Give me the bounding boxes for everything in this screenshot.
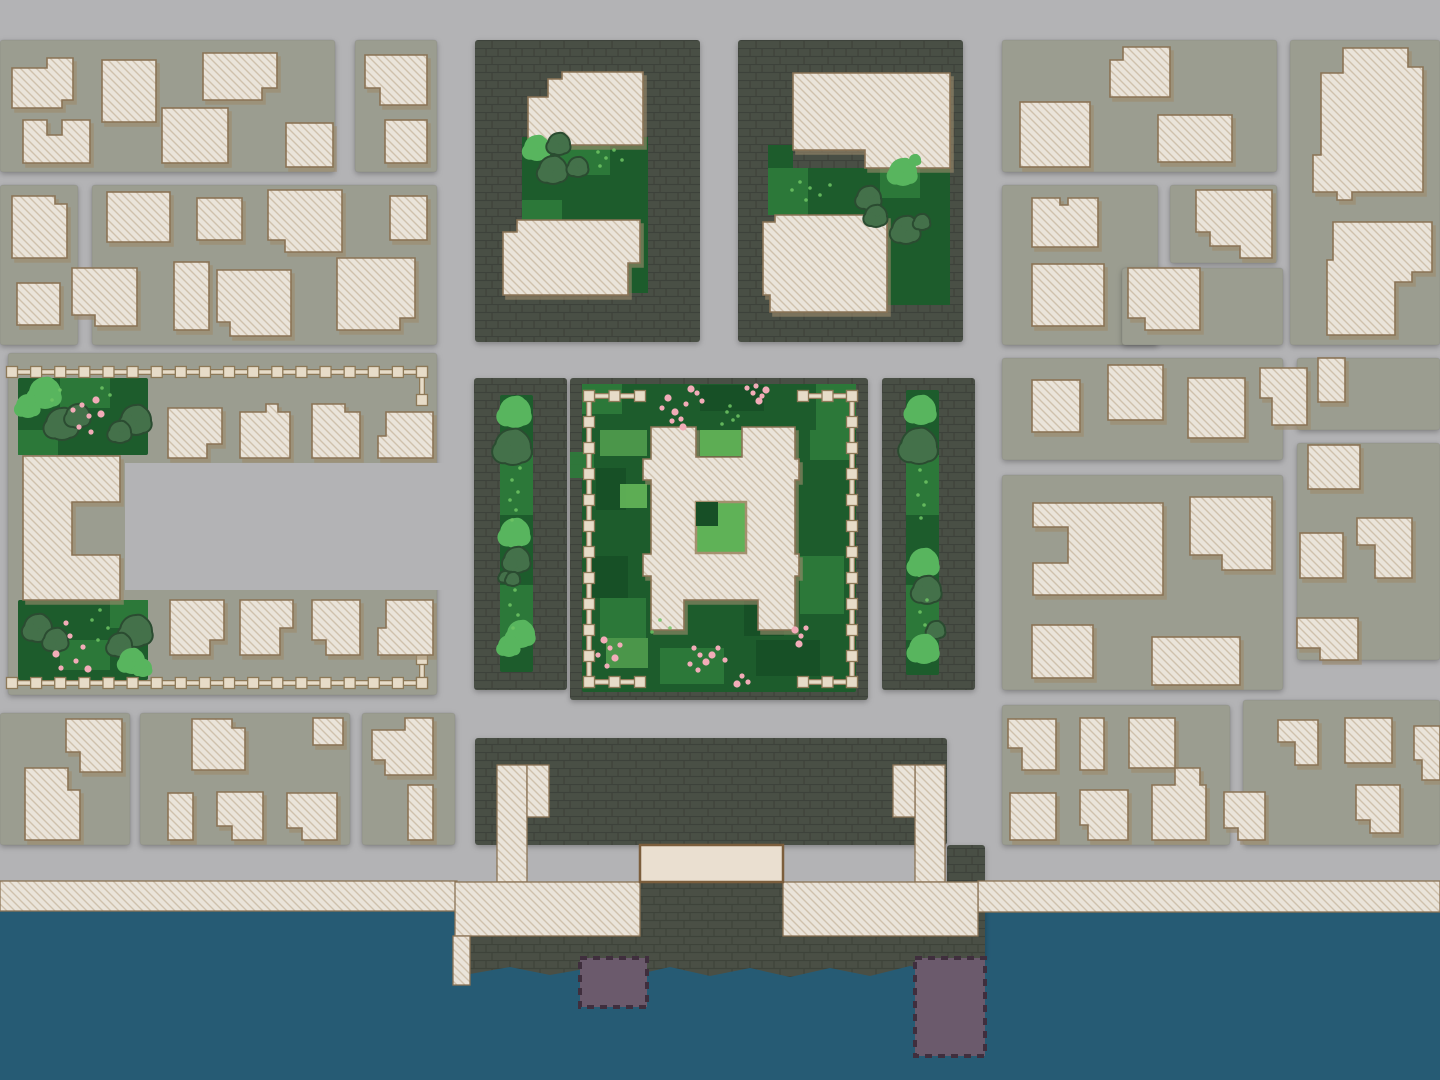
fence-post bbox=[320, 678, 331, 689]
building bbox=[197, 198, 242, 240]
grass-speckle bbox=[916, 493, 920, 497]
flower bbox=[722, 657, 727, 662]
grass-speckle bbox=[923, 623, 927, 627]
fence-post bbox=[127, 678, 138, 689]
building bbox=[286, 123, 333, 167]
garden-patch bbox=[800, 556, 844, 614]
grass-speckle bbox=[731, 418, 735, 422]
tree-canopy bbox=[913, 154, 919, 160]
flower bbox=[76, 424, 81, 429]
fence-post bbox=[417, 395, 428, 406]
garden-patch bbox=[700, 385, 764, 411]
grass-speckle bbox=[108, 393, 112, 397]
boardwalk bbox=[455, 882, 640, 936]
fence-post bbox=[417, 678, 428, 689]
flower bbox=[733, 680, 740, 687]
grass-speckle bbox=[658, 618, 662, 622]
fence-post bbox=[847, 677, 858, 688]
grass-speckle bbox=[918, 610, 922, 614]
tree-canopy bbox=[548, 157, 562, 171]
fence-post bbox=[344, 678, 355, 689]
garden-patch bbox=[756, 640, 820, 676]
flower bbox=[744, 385, 749, 390]
grass-speckle bbox=[96, 638, 100, 642]
fence-post bbox=[175, 678, 186, 689]
dock bbox=[580, 958, 647, 1007]
tree-canopy bbox=[127, 648, 141, 662]
tree-canopy bbox=[33, 615, 47, 629]
fence-post bbox=[7, 367, 18, 378]
tree-canopy bbox=[509, 396, 526, 413]
building bbox=[1158, 115, 1232, 162]
flower bbox=[702, 658, 709, 665]
fence-post bbox=[584, 547, 595, 558]
fence-post bbox=[31, 367, 42, 378]
boardwalk bbox=[915, 765, 945, 882]
building bbox=[1152, 637, 1240, 685]
flower bbox=[669, 418, 674, 423]
building bbox=[385, 120, 427, 163]
fence-post bbox=[103, 678, 114, 689]
grass-speckle bbox=[508, 603, 512, 607]
fence-post bbox=[151, 678, 162, 689]
flower bbox=[88, 429, 93, 434]
grass-speckle bbox=[516, 490, 520, 494]
tree-canopy bbox=[131, 406, 146, 421]
grass-speckle bbox=[808, 186, 812, 190]
fence-post bbox=[296, 367, 307, 378]
boardwalk bbox=[783, 882, 978, 936]
boardwalk bbox=[497, 765, 527, 882]
boardwalk bbox=[0, 881, 457, 911]
building bbox=[312, 404, 360, 458]
tree-canopy bbox=[532, 135, 546, 149]
building bbox=[503, 220, 640, 295]
fence-post bbox=[417, 367, 428, 378]
boardwalk bbox=[527, 765, 549, 817]
building bbox=[12, 196, 67, 258]
grass-speckle bbox=[510, 518, 514, 522]
garden-patch bbox=[600, 598, 646, 638]
fence-post bbox=[368, 678, 379, 689]
grass-speckle bbox=[828, 183, 832, 187]
fence-post bbox=[199, 367, 210, 378]
flower bbox=[92, 396, 99, 403]
fence-post bbox=[392, 678, 403, 689]
building bbox=[1318, 358, 1345, 402]
fence-post bbox=[847, 443, 858, 454]
tree-canopy bbox=[555, 134, 565, 144]
fence-post bbox=[248, 678, 259, 689]
building bbox=[1345, 718, 1392, 763]
building bbox=[313, 718, 343, 745]
grass-speckle bbox=[58, 388, 62, 392]
building bbox=[1032, 625, 1093, 678]
flower bbox=[745, 679, 750, 684]
tree-canopy bbox=[913, 429, 931, 447]
flower bbox=[671, 408, 678, 415]
grass-speckle bbox=[790, 188, 794, 192]
fence-post bbox=[224, 367, 235, 378]
flower bbox=[759, 393, 764, 398]
fence-post bbox=[847, 625, 858, 636]
building bbox=[1032, 264, 1104, 326]
fence-post bbox=[584, 469, 595, 480]
fence-post bbox=[584, 625, 595, 636]
fence-post bbox=[584, 573, 595, 584]
flower bbox=[604, 663, 609, 668]
flower bbox=[753, 383, 758, 388]
garden-patch bbox=[620, 484, 647, 508]
grass-speckle bbox=[106, 626, 110, 630]
flower bbox=[687, 661, 692, 666]
grass-speckle bbox=[620, 158, 624, 162]
fence-post bbox=[584, 651, 595, 662]
flower bbox=[607, 645, 612, 650]
fence-post bbox=[847, 469, 858, 480]
app-viewport bbox=[0, 0, 1440, 1080]
boardwalk bbox=[893, 765, 915, 817]
flower bbox=[52, 650, 59, 657]
building bbox=[1010, 793, 1056, 840]
tree-canopy bbox=[140, 659, 149, 668]
flower bbox=[80, 644, 85, 649]
grass-speckle bbox=[798, 180, 802, 184]
fence-post bbox=[847, 599, 858, 610]
flower bbox=[679, 423, 686, 430]
grass-speckle bbox=[612, 148, 616, 152]
flower bbox=[762, 386, 769, 393]
tree-canopy bbox=[872, 206, 882, 216]
fence-post bbox=[584, 417, 595, 428]
grass-speckle bbox=[514, 508, 518, 512]
grass-speckle bbox=[604, 156, 608, 160]
tree-canopy bbox=[52, 629, 63, 640]
dock bbox=[915, 958, 985, 1056]
flower bbox=[97, 410, 104, 417]
grass-speckle bbox=[924, 480, 928, 484]
fence-post bbox=[320, 367, 331, 378]
building bbox=[378, 600, 433, 655]
flower bbox=[699, 398, 704, 403]
flower bbox=[664, 394, 671, 401]
boardwalk bbox=[453, 936, 470, 985]
flower bbox=[691, 645, 696, 650]
tree-canopy bbox=[575, 158, 584, 167]
city-map-canvas[interactable] bbox=[0, 0, 1440, 1080]
tree-canopy bbox=[24, 394, 36, 406]
fence-post bbox=[55, 678, 66, 689]
tree-canopy bbox=[918, 548, 934, 564]
fence-post bbox=[584, 391, 595, 402]
flower bbox=[73, 658, 78, 663]
building bbox=[1188, 378, 1245, 438]
flower bbox=[694, 390, 699, 395]
grass-speckle bbox=[516, 613, 520, 617]
garden-patch bbox=[60, 378, 110, 408]
fence-post bbox=[175, 367, 186, 378]
flower bbox=[86, 413, 91, 418]
fence-post bbox=[584, 443, 595, 454]
fence-post bbox=[344, 367, 355, 378]
flower bbox=[678, 416, 683, 421]
tree-canopy bbox=[918, 634, 934, 650]
building bbox=[162, 108, 228, 163]
fence-post bbox=[55, 367, 66, 378]
tree-canopy bbox=[116, 422, 126, 432]
flower bbox=[715, 645, 720, 650]
fence-post bbox=[584, 677, 595, 688]
grass-speckle bbox=[90, 618, 94, 622]
flower bbox=[58, 665, 63, 670]
grass-speckle bbox=[513, 588, 517, 592]
fence-post bbox=[584, 521, 595, 532]
flower bbox=[750, 390, 755, 395]
grass-speckle bbox=[922, 503, 926, 507]
grass-speckle bbox=[818, 193, 822, 197]
tree-canopy bbox=[505, 635, 516, 646]
fence-post bbox=[847, 547, 858, 558]
flower bbox=[79, 402, 84, 407]
flower bbox=[708, 651, 715, 658]
tree-canopy bbox=[130, 616, 146, 632]
flower bbox=[697, 652, 702, 657]
fence-post bbox=[847, 573, 858, 584]
tree-canopy bbox=[919, 215, 926, 222]
grass-speckle bbox=[596, 150, 600, 154]
building bbox=[1308, 445, 1360, 489]
flower bbox=[798, 633, 803, 638]
building bbox=[1300, 533, 1343, 578]
flower bbox=[687, 385, 694, 392]
grass-speckle bbox=[650, 630, 654, 634]
fence-post bbox=[79, 678, 90, 689]
building bbox=[168, 793, 193, 840]
building bbox=[1108, 365, 1163, 420]
building bbox=[107, 192, 170, 242]
grass-speckle bbox=[508, 498, 512, 502]
grass-speckle bbox=[725, 410, 729, 414]
grass-speckle bbox=[720, 422, 724, 426]
building bbox=[240, 404, 290, 458]
pier-gate bbox=[640, 845, 783, 882]
grass-speckle bbox=[925, 598, 929, 602]
fence-post bbox=[392, 367, 403, 378]
flower bbox=[600, 636, 607, 643]
flower bbox=[795, 640, 802, 647]
garden-patch bbox=[768, 168, 808, 215]
grass-speckle bbox=[668, 626, 672, 630]
fence-post bbox=[847, 417, 858, 428]
fence-post bbox=[199, 678, 210, 689]
fence-post bbox=[584, 495, 595, 506]
courtyard-layer bbox=[696, 502, 746, 553]
grass-speckle bbox=[918, 468, 922, 472]
building bbox=[378, 412, 433, 458]
grass-speckle bbox=[100, 386, 104, 390]
tree-canopy bbox=[513, 548, 525, 560]
grass-speckle bbox=[510, 478, 514, 482]
flower bbox=[595, 652, 600, 657]
flower bbox=[67, 633, 72, 638]
courtyard-shade bbox=[696, 502, 718, 526]
fence-post bbox=[296, 678, 307, 689]
grass-speckle bbox=[50, 398, 54, 402]
building bbox=[408, 785, 433, 840]
city-block bbox=[1243, 700, 1440, 845]
building bbox=[1020, 102, 1090, 167]
fence-post bbox=[7, 678, 18, 689]
building bbox=[1129, 718, 1175, 768]
tree-canopy bbox=[516, 620, 531, 635]
flower bbox=[739, 673, 744, 678]
flower bbox=[695, 667, 700, 672]
flower bbox=[70, 407, 75, 412]
flower bbox=[611, 654, 618, 661]
fence-post bbox=[847, 495, 858, 506]
tree-canopy bbox=[922, 577, 936, 591]
tree-canopy bbox=[511, 573, 517, 579]
grass-speckle bbox=[728, 404, 732, 408]
tree-canopy bbox=[116, 634, 127, 645]
boardwalk bbox=[978, 881, 1440, 912]
grass-speckle bbox=[511, 626, 515, 630]
building bbox=[1032, 198, 1098, 247]
building bbox=[17, 283, 60, 325]
building bbox=[1080, 718, 1104, 770]
fence-post bbox=[847, 391, 858, 402]
fence-post bbox=[31, 678, 42, 689]
fence-post bbox=[151, 367, 162, 378]
building bbox=[1080, 790, 1128, 840]
grass-speckle bbox=[804, 198, 808, 202]
grass-speckle bbox=[518, 466, 522, 470]
building bbox=[102, 60, 156, 122]
plaza bbox=[125, 463, 457, 590]
tree-canopy bbox=[915, 395, 931, 411]
fence-post bbox=[368, 367, 379, 378]
fence-post bbox=[79, 367, 90, 378]
flower bbox=[683, 401, 688, 406]
garden-patch bbox=[700, 430, 742, 456]
grass-speckle bbox=[919, 516, 923, 520]
flower bbox=[84, 665, 91, 672]
building bbox=[390, 196, 427, 240]
fence-post bbox=[847, 521, 858, 532]
grass-speckle bbox=[736, 414, 740, 418]
building bbox=[1032, 380, 1080, 432]
fence-post bbox=[272, 367, 283, 378]
fence-post bbox=[127, 367, 138, 378]
fence-post bbox=[635, 677, 646, 688]
building bbox=[174, 262, 209, 330]
fence-post bbox=[798, 391, 809, 402]
flower bbox=[617, 642, 622, 647]
flower bbox=[803, 625, 808, 630]
flower bbox=[791, 626, 798, 633]
fence-post bbox=[584, 599, 595, 610]
garden-patch bbox=[606, 638, 648, 668]
fence-post bbox=[822, 677, 833, 688]
fence-post bbox=[798, 677, 809, 688]
tree-canopy bbox=[39, 377, 56, 394]
fence-post bbox=[272, 678, 283, 689]
garden-patch bbox=[600, 430, 647, 456]
fence-post bbox=[847, 651, 858, 662]
fence-post bbox=[103, 367, 114, 378]
fence-post bbox=[635, 391, 646, 402]
grass-speckle bbox=[98, 608, 102, 612]
tree-canopy bbox=[865, 187, 876, 198]
building bbox=[763, 215, 887, 312]
tree-canopy bbox=[507, 430, 525, 448]
fence-post bbox=[609, 677, 620, 688]
flower bbox=[659, 405, 664, 410]
fence-post bbox=[609, 391, 620, 402]
fence-post bbox=[248, 367, 259, 378]
fence-post bbox=[224, 678, 235, 689]
flower bbox=[63, 620, 68, 625]
tree-canopy bbox=[933, 622, 941, 630]
grass-speckle bbox=[598, 164, 602, 168]
fence-post bbox=[822, 391, 833, 402]
